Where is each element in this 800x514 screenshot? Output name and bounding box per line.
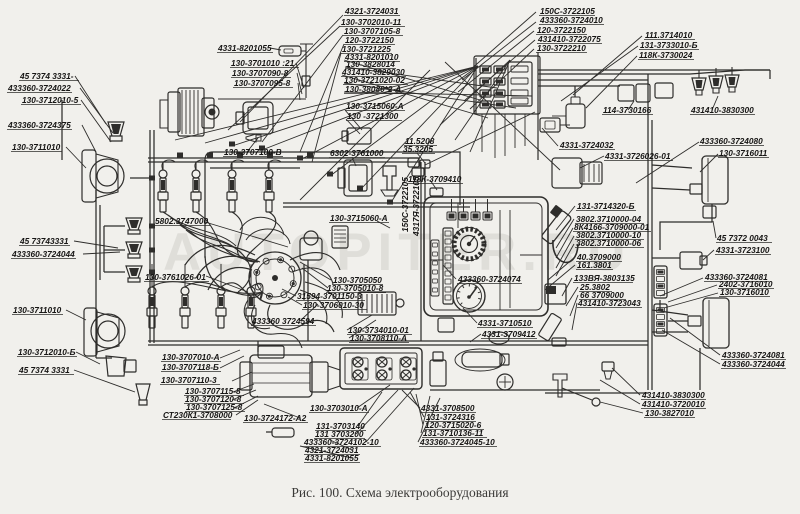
svg-text:433360-3724044: 433360-3724044 [11, 249, 75, 259]
svg-text:130-38080*2-А: 130-38080*2-А [345, 84, 401, 94]
svg-text:СТ230К1-3708000: СТ230К1-3708000 [163, 410, 233, 420]
svg-text:150С-3722105: 150С-3722105 [400, 177, 410, 232]
svg-text:130 -3721300: 130 -3721300 [347, 111, 399, 121]
svg-text:130-3711010: 130-3711010 [13, 305, 62, 315]
svg-text:433360-3724044: 433360-3724044 [721, 359, 785, 369]
svg-text:130-3761026-01: 130-3761026-01 [145, 272, 206, 282]
svg-text:130-3722210: 130-3722210 [537, 43, 586, 53]
svg-text:111.3714010: 111.3714010 [645, 30, 693, 40]
svg-text:35.3205: 35.3205 [403, 144, 433, 154]
svg-text:45 7374 3331-: 45 7374 3331- [19, 71, 74, 81]
svg-text:4321-3724031: 4321-3724031 [344, 6, 399, 16]
svg-text:130-3712010-5: 130-3712010-5 [22, 95, 79, 105]
svg-text:4331-3723100: 4331-3723100 [715, 245, 770, 255]
svg-text:4331-3724032: 4331-3724032 [559, 140, 614, 150]
svg-text:130-3712010-Б: 130-3712010-Б [18, 347, 76, 357]
svg-text:433360-3724045-10: 433360-3724045-10 [419, 437, 495, 447]
svg-text:130-3715060-А: 130-3715060-А [346, 101, 404, 111]
svg-text:130-3707095-8: 130-3707095-8 [234, 78, 291, 88]
svg-text:45 73743331: 45 73743331 [19, 236, 69, 246]
svg-text:3802.3710000-06: 3802.3710000-06 [576, 238, 641, 248]
svg-text:114-3730166: 114-3730166 [603, 105, 652, 115]
svg-text:4331-3710510: 4331-3710510 [477, 318, 532, 328]
svg-text:6302-3761000: 6302-3761000 [330, 148, 384, 158]
svg-text:433360 3724594: 433360 3724594 [251, 316, 315, 326]
svg-text:130-3707090-8: 130-3707090-8 [232, 68, 289, 78]
svg-text:4331-8201055: 4331-8201055 [217, 43, 272, 53]
svg-text:130-3716011: 130-3716011 [719, 148, 768, 158]
svg-text:130-3708110-А: 130-3708110-А [350, 333, 407, 343]
svg-text:118К-3730024: 118К-3730024 [639, 50, 693, 60]
svg-text:130-3827010: 130-3827010 [645, 408, 694, 418]
svg-text:45 7372 0043: 45 7372 0043 [716, 233, 768, 243]
svg-text:130-3706010-30: 130-3706010-30 [303, 300, 364, 310]
svg-text:433360-3724074: 433360-3724074 [457, 274, 521, 284]
svg-text:130-3724172-А2: 130-3724172-А2 [244, 413, 307, 423]
svg-text:131-3714320-Б: 131-3714320-Б [577, 201, 635, 211]
svg-text:130-3711010: 130-3711010 [12, 142, 61, 152]
svg-text:Рис. 100. Схема электрооборудо: Рис. 100. Схема электрооборудования [291, 485, 508, 500]
svg-text:130-3707110-3: 130-3707110-3 [161, 375, 217, 385]
svg-text:4317Я-3722105: 4317Я-3722105 [411, 176, 421, 237]
svg-text:431410-3830300: 431410-3830300 [690, 105, 754, 115]
svg-text:45 7374 3331: 45 7374 3331 [18, 365, 70, 375]
svg-text:433360-3724375: 433360-3724375 [7, 120, 71, 130]
svg-text:4331-3726026-01: 4331-3726026-01 [604, 151, 671, 161]
svg-text:130-3715060-А: 130-3715060-А [330, 213, 388, 223]
svg-text:161.3801: 161.3801 [577, 260, 612, 270]
svg-text:130-3707010-А: 130-3707010-А [162, 352, 220, 362]
svg-text:131-3733010-Б: 131-3733010-Б [640, 40, 698, 50]
svg-text:130-3707118-Б: 130-3707118-Б [162, 362, 219, 372]
svg-text:130-3703010-А: 130-3703010-А [310, 403, 368, 413]
svg-text:433360-3724080: 433360-3724080 [699, 136, 763, 146]
svg-text:130-3716010: 130-3716010 [720, 287, 769, 297]
svg-text:130-3707100-В: 130-3707100-В [224, 147, 282, 157]
svg-text:4331-3709412: 4331-3709412 [481, 329, 536, 339]
svg-text:5802.3747000: 5802.3747000 [155, 216, 208, 226]
svg-text:433360-3724010: 433360-3724010 [539, 15, 603, 25]
svg-text:4331-8201055: 4331-8201055 [304, 453, 359, 463]
svg-text:130-3701010 :21: 130-3701010 :21 [231, 58, 295, 68]
svg-text:433360-3724022: 433360-3724022 [7, 83, 71, 93]
svg-text:431410-3723043: 431410-3723043 [577, 298, 641, 308]
